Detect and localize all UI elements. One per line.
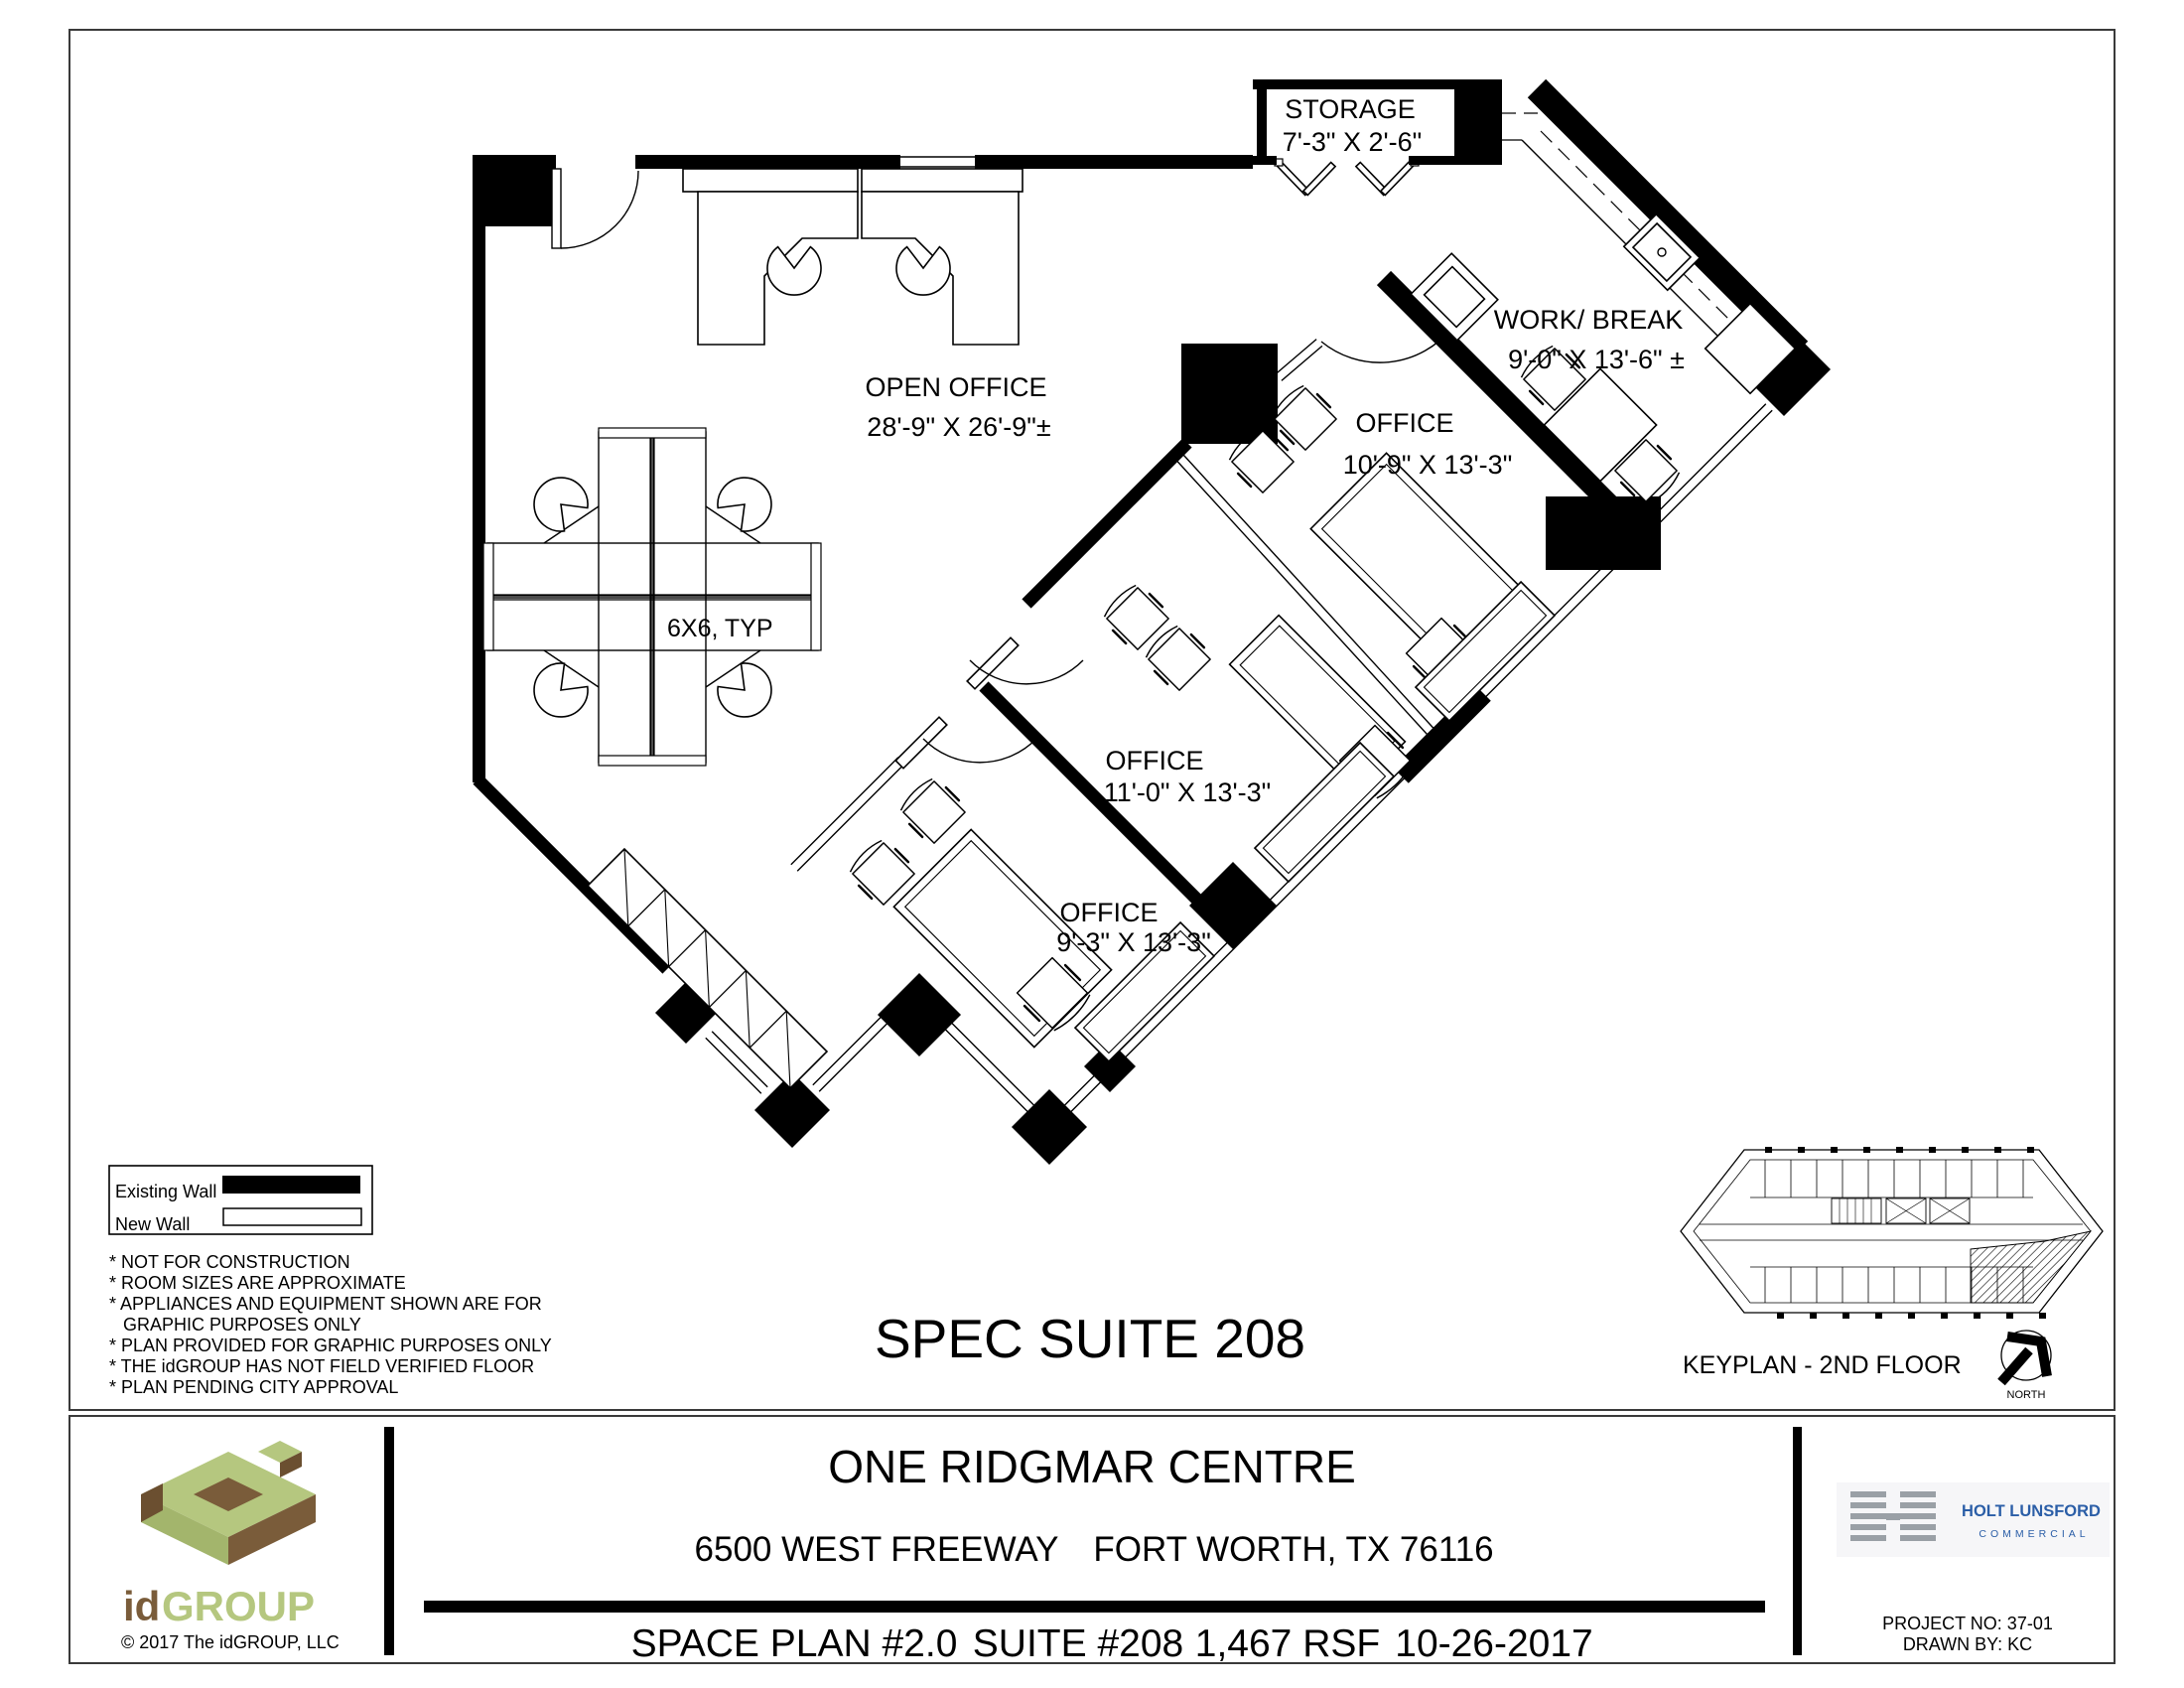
svg-text:COMMERCIAL: COMMERCIAL bbox=[1979, 1528, 2089, 1540]
svg-text:SPEC SUITE 208: SPEC SUITE 208 bbox=[875, 1308, 1305, 1369]
svg-text:NORTH: NORTH bbox=[2007, 1389, 2046, 1401]
svg-text:* PLAN PROVIDED FOR GRAPHIC PU: * PLAN PROVIDED FOR GRAPHIC PURPOSES ONL… bbox=[109, 1336, 552, 1355]
svg-text:GRAPHIC PURPOSES ONLY: GRAPHIC PURPOSES ONLY bbox=[123, 1315, 361, 1335]
svg-text:6X6, TYP: 6X6, TYP bbox=[667, 615, 773, 642]
svg-text:Existing Wall: Existing Wall bbox=[115, 1182, 216, 1201]
svg-text:1,467 RSF: 1,467 RSF bbox=[1195, 1622, 1380, 1665]
svg-text:10'-9" X 13'-3": 10'-9" X 13'-3" bbox=[1343, 450, 1513, 480]
svg-text:FORT WORTH, TX 76116: FORT WORTH, TX 76116 bbox=[1093, 1530, 1493, 1569]
svg-text:OFFICE: OFFICE bbox=[1106, 746, 1204, 775]
svg-text:7'-3" X 2'-6": 7'-3" X 2'-6" bbox=[1283, 127, 1423, 157]
svg-text:© 2017 The idGROUP, LLC: © 2017 The idGROUP, LLC bbox=[121, 1632, 340, 1652]
svg-text:KEYPLAN - 2ND FLOOR: KEYPLAN - 2ND FLOOR bbox=[1683, 1351, 1962, 1379]
svg-text:SPACE PLAN #2.0: SPACE PLAN #2.0 bbox=[631, 1622, 958, 1665]
svg-text:28'-9" X 26'-9"±: 28'-9" X 26'-9"± bbox=[867, 412, 1050, 442]
svg-text:6500 WEST FREEWAY: 6500 WEST FREEWAY bbox=[695, 1530, 1059, 1569]
svg-text:11'-0" X 13'-3": 11'-0" X 13'-3" bbox=[1104, 777, 1272, 807]
svg-text:* PLAN PENDING CITY APPROVAL: * PLAN PENDING CITY APPROVAL bbox=[109, 1377, 398, 1397]
svg-text:* THE idGROUP HAS NOT FIELD VE: * THE idGROUP HAS NOT FIELD VERIFIED FLO… bbox=[109, 1356, 534, 1376]
svg-text:WORK/ BREAK: WORK/ BREAK bbox=[1494, 305, 1684, 335]
svg-text:PROJECT NO: 37-01: PROJECT NO: 37-01 bbox=[1882, 1614, 2053, 1633]
svg-text:* APPLIANCES AND EQUIPMENT SHO: * APPLIANCES AND EQUIPMENT SHOWN ARE FOR bbox=[109, 1294, 542, 1314]
svg-text:HOLT LUNSFORD: HOLT LUNSFORD bbox=[1962, 1502, 2101, 1520]
svg-text:ONE RIDGMAR CENTRE: ONE RIDGMAR CENTRE bbox=[828, 1441, 1356, 1492]
svg-text:GROUP: GROUP bbox=[162, 1583, 315, 1629]
svg-text:STORAGE: STORAGE bbox=[1285, 94, 1416, 124]
svg-text:id: id bbox=[123, 1583, 160, 1629]
svg-text:10-26-2017: 10-26-2017 bbox=[1395, 1622, 1593, 1665]
svg-text:* NOT FOR CONSTRUCTION: * NOT FOR CONSTRUCTION bbox=[109, 1252, 350, 1272]
svg-text:OFFICE: OFFICE bbox=[1060, 898, 1159, 927]
svg-text:New Wall: New Wall bbox=[115, 1214, 190, 1234]
svg-text:9'-3" X 13'-3": 9'-3" X 13'-3" bbox=[1056, 927, 1211, 957]
svg-text:OPEN OFFICE: OPEN OFFICE bbox=[865, 372, 1046, 402]
svg-text:* ROOM SIZES ARE APPROXIMATE: * ROOM SIZES ARE APPROXIMATE bbox=[109, 1273, 406, 1293]
svg-text:9'-0" X 13'-6" ±: 9'-0" X 13'-6" ± bbox=[1508, 345, 1685, 374]
svg-text:OFFICE: OFFICE bbox=[1356, 408, 1454, 438]
svg-text:SUITE #208: SUITE #208 bbox=[973, 1622, 1183, 1665]
svg-text:DRAWN BY: KC: DRAWN BY: KC bbox=[1903, 1634, 2032, 1654]
